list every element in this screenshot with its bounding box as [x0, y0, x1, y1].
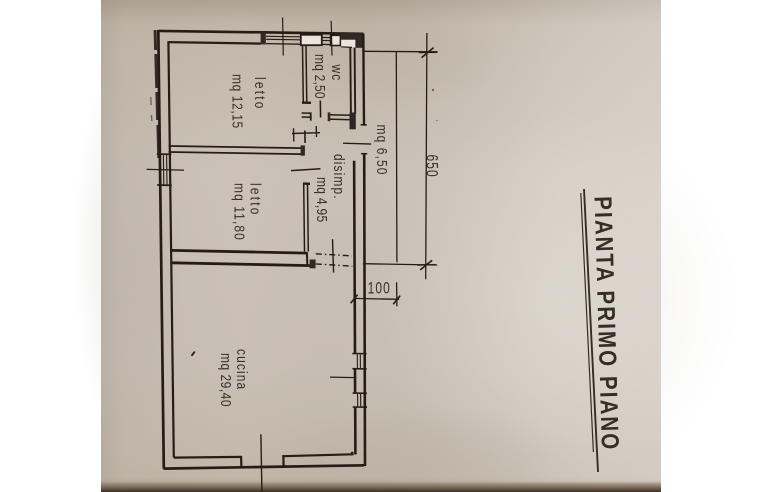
- svg-text:100: 100: [368, 280, 391, 298]
- svg-text:650: 650: [422, 155, 440, 178]
- svg-text:letto: letto: [251, 77, 268, 111]
- svg-text:letto: letto: [247, 183, 264, 217]
- svg-text:cucina: cucina: [234, 349, 251, 390]
- svg-text:mq 4,95: mq 4,95: [314, 177, 331, 222]
- svg-text:mq 6,50: mq 6,50: [374, 125, 391, 176]
- svg-text:mq 29,40: mq 29,40: [218, 353, 235, 407]
- svg-text:mq 12,15: mq 12,15: [229, 74, 246, 129]
- svg-text:mq 11,80: mq 11,80: [231, 183, 248, 241]
- svg-text:disimp.: disimp.: [331, 154, 348, 200]
- svg-text:mq 2,50: mq 2,50: [312, 54, 329, 99]
- svg-text:wc: wc: [329, 64, 346, 82]
